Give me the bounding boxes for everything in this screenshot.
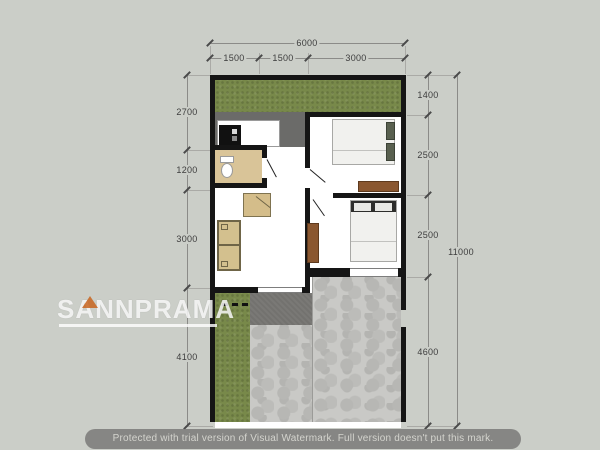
dim-label: 4100 bbox=[174, 352, 199, 362]
trial-watermark-notice: Protected with trial version of Visual W… bbox=[85, 429, 521, 449]
dim-label: 4600 bbox=[415, 347, 440, 357]
outer-wall-right bbox=[401, 327, 406, 422]
extension-line bbox=[188, 288, 210, 289]
pillow bbox=[386, 122, 395, 140]
floor-plan bbox=[210, 75, 406, 428]
extension-line bbox=[210, 46, 211, 74]
watermark-a-accent-icon bbox=[82, 296, 98, 308]
outer-wall-right bbox=[401, 75, 406, 310]
dining-table-icon bbox=[243, 193, 271, 217]
toilet-icon bbox=[221, 163, 233, 178]
pillow bbox=[354, 203, 371, 211]
bedroom2-bottom-wall bbox=[305, 268, 350, 277]
extension-line bbox=[185, 426, 213, 427]
outer-wall-left bbox=[210, 75, 215, 422]
porch-slab bbox=[250, 293, 313, 325]
pillow bbox=[386, 143, 395, 161]
stove-burner bbox=[232, 129, 237, 134]
sofa-arm bbox=[221, 224, 228, 230]
outer-wall-top bbox=[210, 75, 406, 80]
extension-line bbox=[188, 150, 210, 151]
paving-divider bbox=[312, 277, 313, 422]
stove-icon bbox=[219, 125, 241, 145]
bed-icon bbox=[350, 200, 397, 262]
wardrobe-icon bbox=[307, 223, 319, 263]
connector-wall bbox=[305, 268, 310, 293]
bedroom1-left-wall bbox=[305, 112, 310, 168]
bedroom-divider-wall bbox=[333, 193, 401, 198]
chair-line bbox=[256, 196, 271, 208]
dim-label-total-width: 6000 bbox=[294, 38, 319, 48]
sofa-icon bbox=[217, 220, 241, 271]
sofa-cushion-divider bbox=[219, 244, 239, 246]
dim-label: 1400 bbox=[415, 90, 440, 100]
dim-label: 2500 bbox=[415, 150, 440, 160]
watermark-underline bbox=[59, 324, 217, 327]
bed-fold-line bbox=[333, 150, 394, 151]
extension-line bbox=[188, 75, 210, 76]
dim-label: 2700 bbox=[174, 107, 199, 117]
toilet-tank bbox=[220, 156, 234, 163]
dimension-line-left bbox=[187, 75, 188, 426]
bathroom-bottom-wall bbox=[210, 183, 267, 188]
window bbox=[350, 268, 398, 277]
dim-label: 3000 bbox=[174, 234, 199, 244]
sofa-arm bbox=[221, 261, 228, 267]
terrace-paving bbox=[313, 277, 401, 422]
bedroom1-top-wall bbox=[305, 112, 401, 117]
dimension-line-right bbox=[428, 75, 429, 426]
front-boundary bbox=[215, 422, 401, 428]
dim-label: 1500 bbox=[221, 53, 246, 63]
dim-label: 1200 bbox=[174, 165, 199, 175]
stove-burner bbox=[232, 136, 237, 141]
front-garden bbox=[215, 80, 401, 115]
pillow bbox=[375, 203, 392, 211]
bed-fold-line bbox=[351, 241, 396, 242]
driveway-paving bbox=[250, 325, 313, 422]
bathroom-right-wall bbox=[262, 145, 267, 158]
extension-line bbox=[188, 190, 210, 191]
dim-label: 3000 bbox=[343, 53, 368, 63]
floor-plan-image: 6000 1500 1500 3000 2700 1200 3000 4100 … bbox=[0, 0, 600, 450]
extension-line bbox=[407, 75, 457, 76]
dim-label: 1500 bbox=[270, 53, 295, 63]
wardrobe-icon bbox=[358, 181, 399, 192]
extension-line bbox=[407, 426, 457, 427]
dim-label-total-height: 11000 bbox=[446, 247, 476, 257]
dim-label: 2500 bbox=[415, 230, 440, 240]
extension-line bbox=[405, 46, 406, 74]
